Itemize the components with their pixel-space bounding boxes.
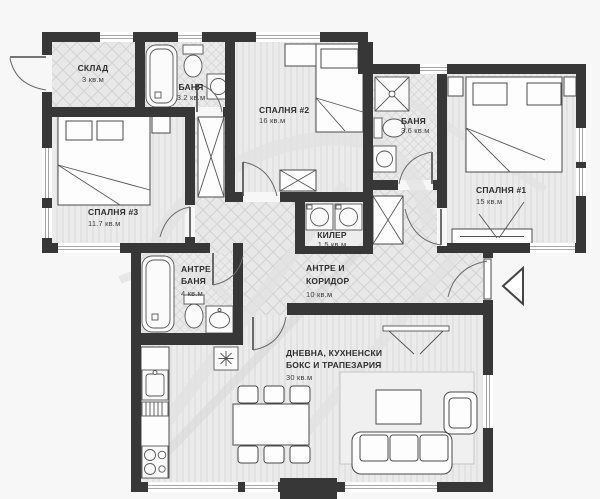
- room-area-bedroom-1: 15 кв.м: [476, 197, 502, 206]
- room-label-bedroom-3: СПАЛНЯ #3: [88, 207, 138, 217]
- stove-icon: [142, 446, 168, 478]
- vent-icon: [214, 347, 238, 370]
- wardrobe-icon: [280, 170, 316, 191]
- room-label-storage: СКЛАД: [78, 63, 109, 73]
- window: [483, 375, 493, 428]
- nightstand-icon: [448, 77, 463, 96]
- room-area-bedroom-2: 16 кв.м: [259, 116, 285, 125]
- room-area-bathroom-top: 3.2 кв.м: [177, 93, 206, 102]
- kitchen-sink-icon: [142, 370, 168, 400]
- sofa-icon: [352, 432, 452, 474]
- window: [420, 64, 447, 74]
- room-area-bedroom-3: 11.7 кв.м: [88, 219, 120, 228]
- window: [256, 32, 320, 42]
- room-area-pantry: 1.5 кв.м: [318, 240, 347, 249]
- sink-icon: [206, 306, 233, 333]
- floor-plan-svg: СКЛАД 3 кв.м БАНЯ 3.2 кв.м СПАЛНЯ #2 16 …: [0, 0, 600, 499]
- nightstand-icon: [152, 115, 170, 133]
- room-label-living-2: БОКС И ТРАПЕЗАРИЯ: [286, 360, 381, 370]
- window: [576, 128, 586, 162]
- toilet-icon: [184, 295, 204, 328]
- washing-machine-icon: [306, 204, 333, 230]
- washing-machine-icon: [335, 204, 362, 230]
- room-area-hall-bathroom: 4 кв.м: [181, 289, 203, 298]
- room-label-hall-corridor-2: КОРИДОР: [306, 276, 349, 286]
- single-bed-icon: [316, 44, 363, 132]
- room-area-storage: 3 кв.м: [82, 75, 104, 84]
- room-label-hall-corridor-1: АНТРЕ И: [306, 263, 345, 273]
- room-label-hall-bathroom-2: БАНЯ: [181, 276, 206, 286]
- dish-rack-icon: [142, 402, 168, 416]
- room-area-living: 30 кв.м: [286, 373, 312, 382]
- wardrobe-icon: [198, 117, 224, 197]
- double-bed-icon: [466, 77, 562, 172]
- room-label-pantry: КИЛЕР: [317, 230, 347, 240]
- coffee-table-icon: [376, 390, 421, 424]
- window: [345, 482, 437, 492]
- room-label-bedroom-2: СПАЛНЯ #2: [259, 105, 309, 115]
- armchair-icon: [444, 392, 477, 434]
- shower-icon: [375, 77, 409, 111]
- window: [42, 208, 52, 238]
- bathtub-icon: [142, 256, 174, 332]
- sink-icon: [373, 146, 396, 172]
- window: [576, 168, 586, 196]
- window: [58, 243, 120, 253]
- room-label-living-1: ДНЕВНА, КУХНЕНСКИ: [286, 348, 382, 358]
- window: [530, 243, 575, 253]
- room-area-bathroom-right: 3.6 кв.м: [401, 126, 430, 135]
- floor-plan-screenshot: СКЛАД 3 кв.м БАНЯ 3.2 кв.м СПАЛНЯ #2 16 …: [0, 0, 600, 499]
- toilet-icon: [183, 45, 203, 77]
- window: [178, 32, 202, 42]
- window: [245, 482, 278, 492]
- window: [148, 482, 238, 492]
- room-area-hall-corridor: 10 кв.м: [306, 290, 332, 299]
- window: [42, 148, 52, 198]
- window: [100, 32, 133, 42]
- room-label-hall-bathroom-1: АНТРЕ: [181, 264, 211, 274]
- double-bed-icon: [58, 115, 150, 205]
- dining-table-icon: [233, 386, 310, 463]
- bathtub-icon: [146, 45, 177, 107]
- wardrobe-icon: [373, 196, 403, 244]
- dresser-icon: [285, 44, 316, 66]
- room-label-bedroom-1: СПАЛНЯ #1: [476, 185, 526, 195]
- room-label-bathroom-right: БАНЯ: [401, 116, 426, 126]
- nightstand-icon: [564, 77, 576, 96]
- room-label-bathroom-top: БАНЯ: [179, 82, 204, 92]
